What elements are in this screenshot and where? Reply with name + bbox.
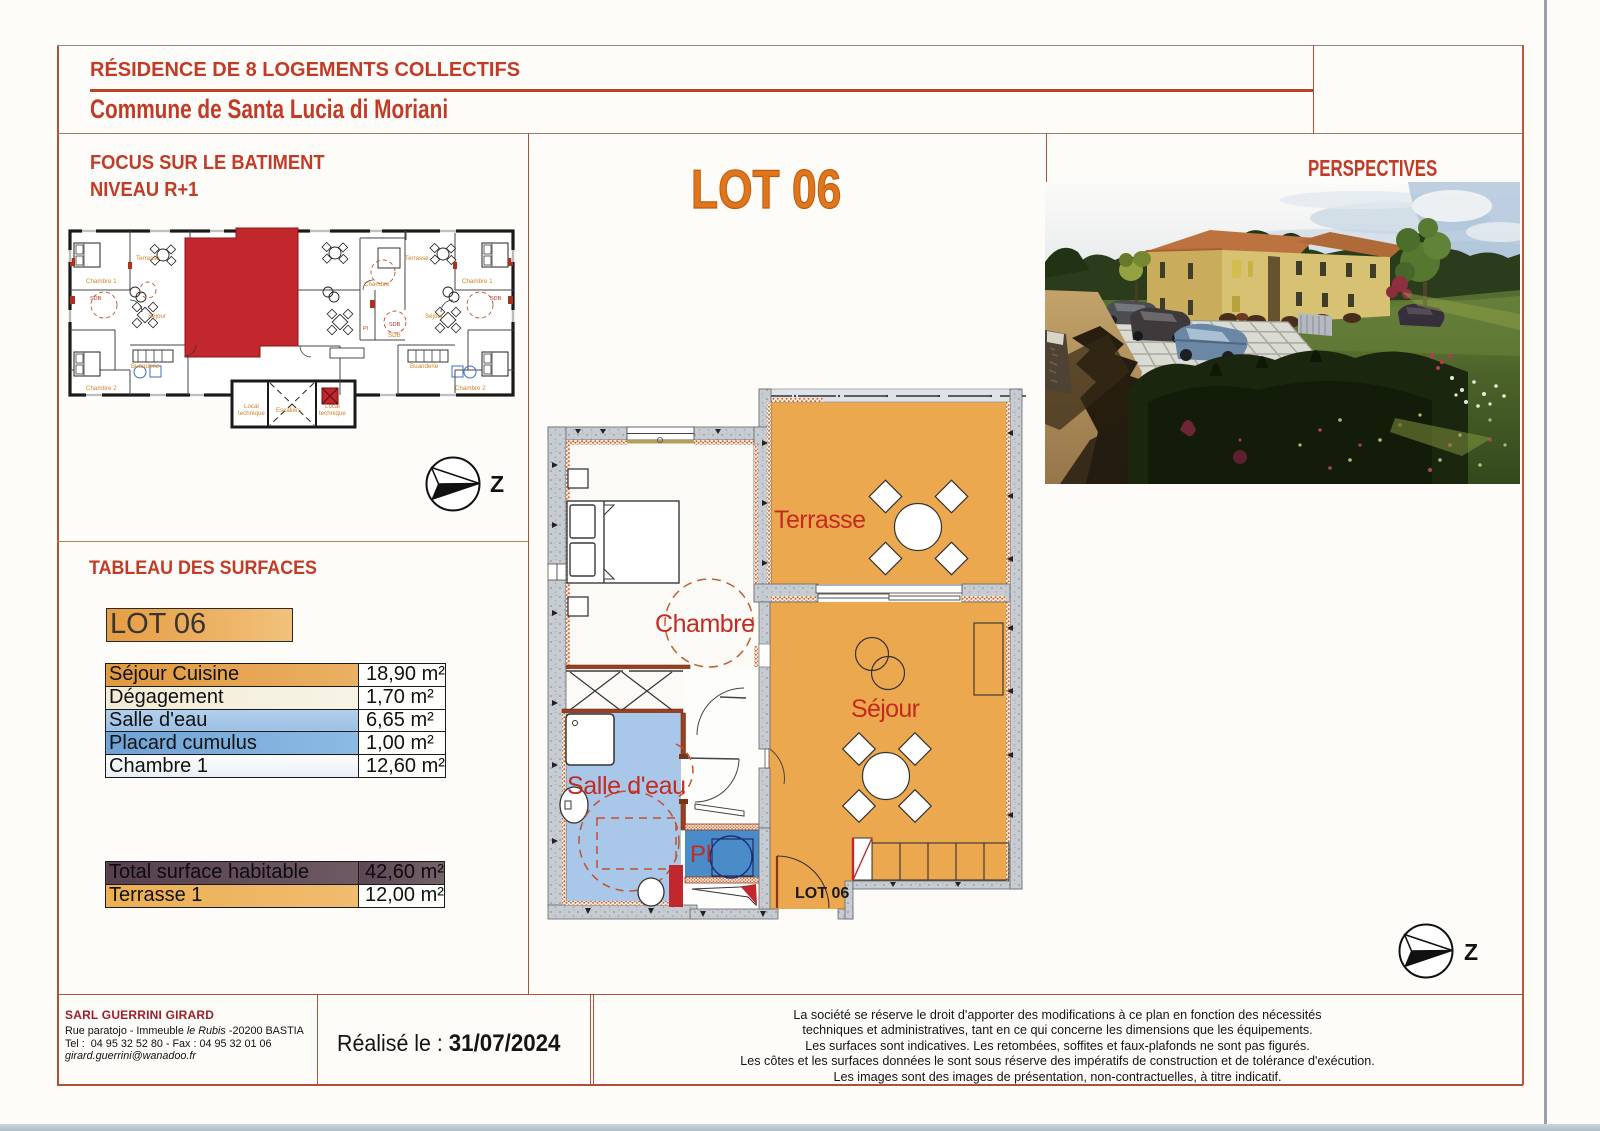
svg-text:SDB: SDB bbox=[388, 332, 401, 339]
svg-text:Séjour: Séjour bbox=[851, 695, 920, 723]
svg-text:Z: Z bbox=[1464, 939, 1478, 965]
svg-text:Chambre 2: Chambre 2 bbox=[86, 385, 117, 392]
svg-text:Chambre: Chambre bbox=[655, 610, 755, 638]
svg-text:Buanderie: Buanderie bbox=[410, 363, 439, 370]
svg-text:Chambre 2: Chambre 2 bbox=[455, 385, 486, 392]
svg-text:Chambre 1: Chambre 1 bbox=[462, 278, 493, 285]
svg-text:Terrasse: Terrasse bbox=[774, 506, 866, 534]
svg-text:Z: Z bbox=[490, 471, 504, 497]
svg-text:Escaliers: Escaliers bbox=[276, 407, 301, 414]
svg-text:Chambre: Chambre bbox=[364, 281, 390, 288]
svg-text:technique: technique bbox=[238, 410, 265, 417]
svg-text:Pl: Pl bbox=[690, 841, 711, 868]
svg-text:Séjour: Séjour bbox=[425, 313, 443, 320]
svg-text:technique: technique bbox=[319, 410, 346, 417]
svg-text:SDB: SDB bbox=[389, 322, 401, 328]
svg-text:Séjour: Séjour bbox=[148, 313, 166, 320]
svg-text:Terrasse: Terrasse bbox=[405, 255, 429, 262]
svg-text:Local: Local bbox=[325, 403, 340, 410]
svg-text:SDB: SDB bbox=[490, 296, 502, 302]
svg-text:Local: Local bbox=[244, 403, 259, 410]
svg-text:Buanderie: Buanderie bbox=[131, 363, 160, 370]
svg-text:Terrasse: Terrasse bbox=[136, 255, 160, 262]
svg-text:Chambre 1: Chambre 1 bbox=[86, 278, 117, 285]
svg-text:Pl: Pl bbox=[363, 326, 368, 332]
svg-text:SDB: SDB bbox=[90, 296, 102, 302]
svg-text:Salle d'eau: Salle d'eau bbox=[567, 772, 686, 800]
svg-text:LOT 06: LOT 06 bbox=[795, 885, 849, 902]
